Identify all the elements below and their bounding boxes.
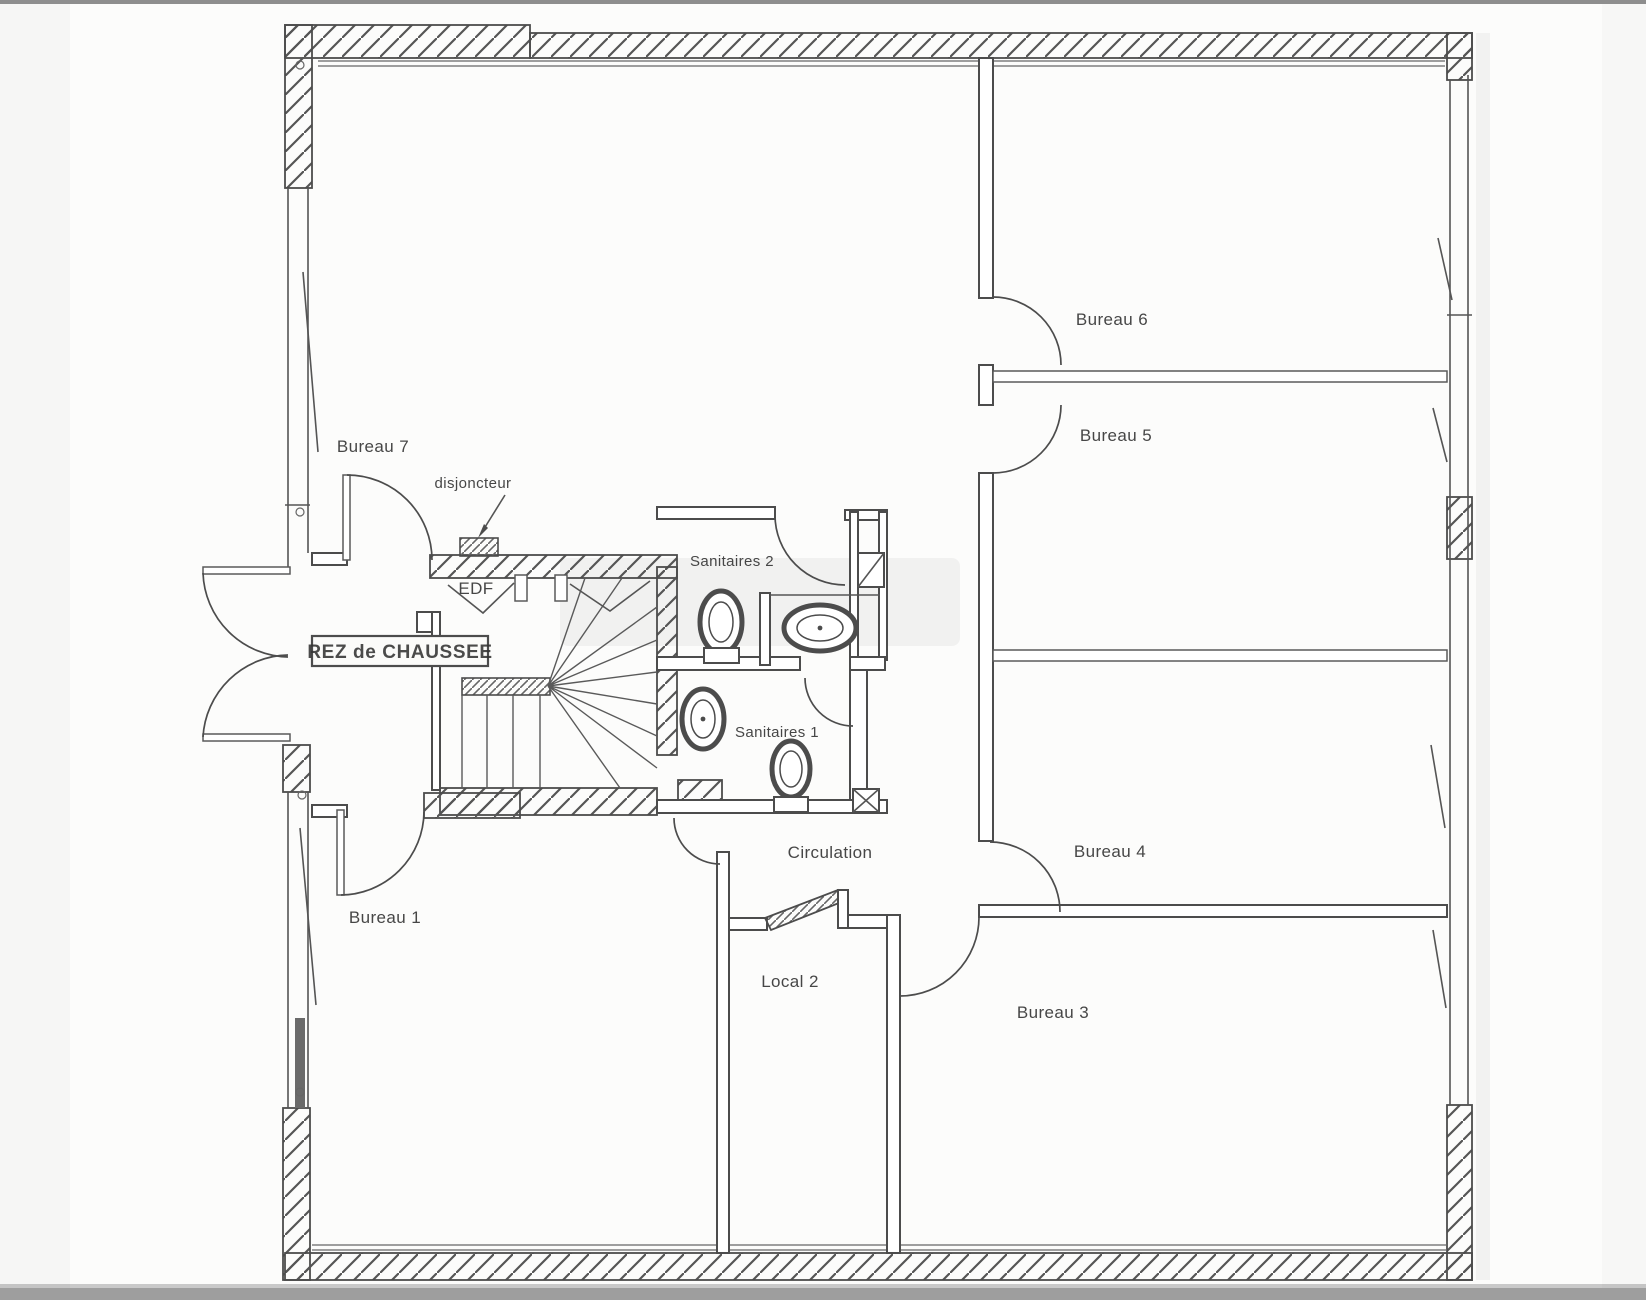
wall-bureau1-top-hatched [424, 793, 520, 818]
wall-corridor-mid [979, 365, 993, 405]
room-label-edf: EDF [458, 579, 493, 598]
room-label-circulation: Circulation [788, 843, 873, 862]
wall-local2-top-left [729, 918, 767, 930]
stair-treads-straight [462, 695, 540, 788]
wall-edf-top-hatched [430, 555, 677, 578]
door-arc-bureau4 [990, 842, 1060, 912]
wall-corridor-lower [979, 473, 993, 841]
sink-sanitaires1-drain [701, 717, 706, 722]
door-arc-bureau3 [900, 917, 979, 996]
window-left-upper-casement [303, 272, 318, 452]
stair-landing-band [462, 678, 550, 695]
door-arc-entry-top [203, 573, 288, 657]
room-label-bureau3: Bureau 3 [1017, 1003, 1089, 1022]
wall-corridor-upper [979, 58, 993, 298]
wall-sanitaires2-top [657, 507, 775, 519]
scan-left-margin [0, 4, 70, 1288]
window-right-casement-2 [1433, 408, 1447, 462]
door-leaf-entry-top [203, 567, 290, 574]
door-arc-bureau5 [993, 405, 1061, 473]
wall-local2-right [887, 915, 900, 1253]
wall-local2-jog [838, 890, 848, 928]
floor-title: REZ de CHAUSSEE [307, 642, 492, 663]
room-label-sanitaires2: Sanitaires 2 [690, 553, 774, 570]
scan-top-edge [0, 0, 1646, 4]
sink-sanitaires2-drain [818, 626, 823, 631]
wall-local2-left [717, 852, 729, 1253]
exterior-wall-left-upper [285, 25, 312, 188]
room-label-local2: Local 2 [761, 972, 819, 991]
window-right-casement-3 [1431, 745, 1445, 828]
door-arc-sanitaires1 [805, 678, 853, 726]
toilet-sanitaires2-tank [704, 648, 739, 663]
door-arc-bureau6 [993, 297, 1061, 365]
wall-hall-bureau7 [312, 553, 347, 565]
floor-plan-drawing: Bureau 7 disjoncteur EDF REZ de CHAUSSEE… [0, 0, 1646, 1300]
room-label-bureau5: Bureau 5 [1080, 426, 1152, 445]
edf-door-post-1 [515, 575, 527, 601]
window-left-upper [288, 188, 308, 567]
door-arc-bureau7 [347, 475, 432, 560]
partition-bureau5-bureau4 [993, 650, 1447, 661]
room-label-bureau7: Bureau 7 [337, 437, 409, 456]
scan-right-margin [1602, 4, 1646, 1288]
annotation-disjoncteur: disjoncteur [435, 475, 512, 492]
door-arc-entry-bottom [203, 655, 288, 737]
partition-bureau4-bureau3 [979, 905, 1447, 917]
disjoncteur-box [460, 538, 498, 556]
toilet-sanitaires1-inner [780, 751, 802, 787]
room-label-sanitaires1: Sanitaires 1 [735, 724, 819, 741]
door-leaf-entry-bottom [203, 734, 290, 741]
toilet-sanitaires2-inner [709, 602, 733, 642]
exterior-wall-top-left [285, 25, 530, 58]
door-leaf-bureau1 [337, 810, 344, 895]
exterior-wall-right-top [1447, 33, 1472, 80]
wall-joint-dot-2 [296, 508, 304, 516]
scan-bottom-fade [0, 1284, 1646, 1288]
exterior-wall-left-pier [283, 745, 310, 792]
wall-sanitaires-divider-post [850, 657, 885, 670]
floor-plan-scan: Bureau 7 disjoncteur EDF REZ de CHAUSSEE… [0, 0, 1646, 1300]
exterior-wall-top [530, 33, 1472, 58]
door-arc-bureau1 [341, 812, 424, 895]
exterior-wall-bottom [285, 1253, 1472, 1280]
room-label-bureau6: Bureau 6 [1076, 310, 1148, 329]
wall-sanitaires2-stall [760, 593, 770, 665]
window-right-lines [1450, 75, 1468, 1105]
room-label-bureau4: Bureau 4 [1074, 842, 1146, 861]
scan-wall-shadow [1476, 33, 1490, 1280]
scan-bottom-edge [0, 1288, 1646, 1300]
wall-local2-diagonal [765, 890, 844, 930]
door-leaf-bureau7 [343, 475, 350, 560]
window-right-casement-4 [1433, 930, 1446, 1008]
toilet-sanitaires1-tank [774, 797, 808, 812]
edf-door-post-2 [555, 575, 567, 601]
door-arc-circulation [674, 818, 720, 864]
partition-bureau6-bureau5 [993, 371, 1447, 382]
room-label-bureau1: Bureau 1 [349, 908, 421, 927]
